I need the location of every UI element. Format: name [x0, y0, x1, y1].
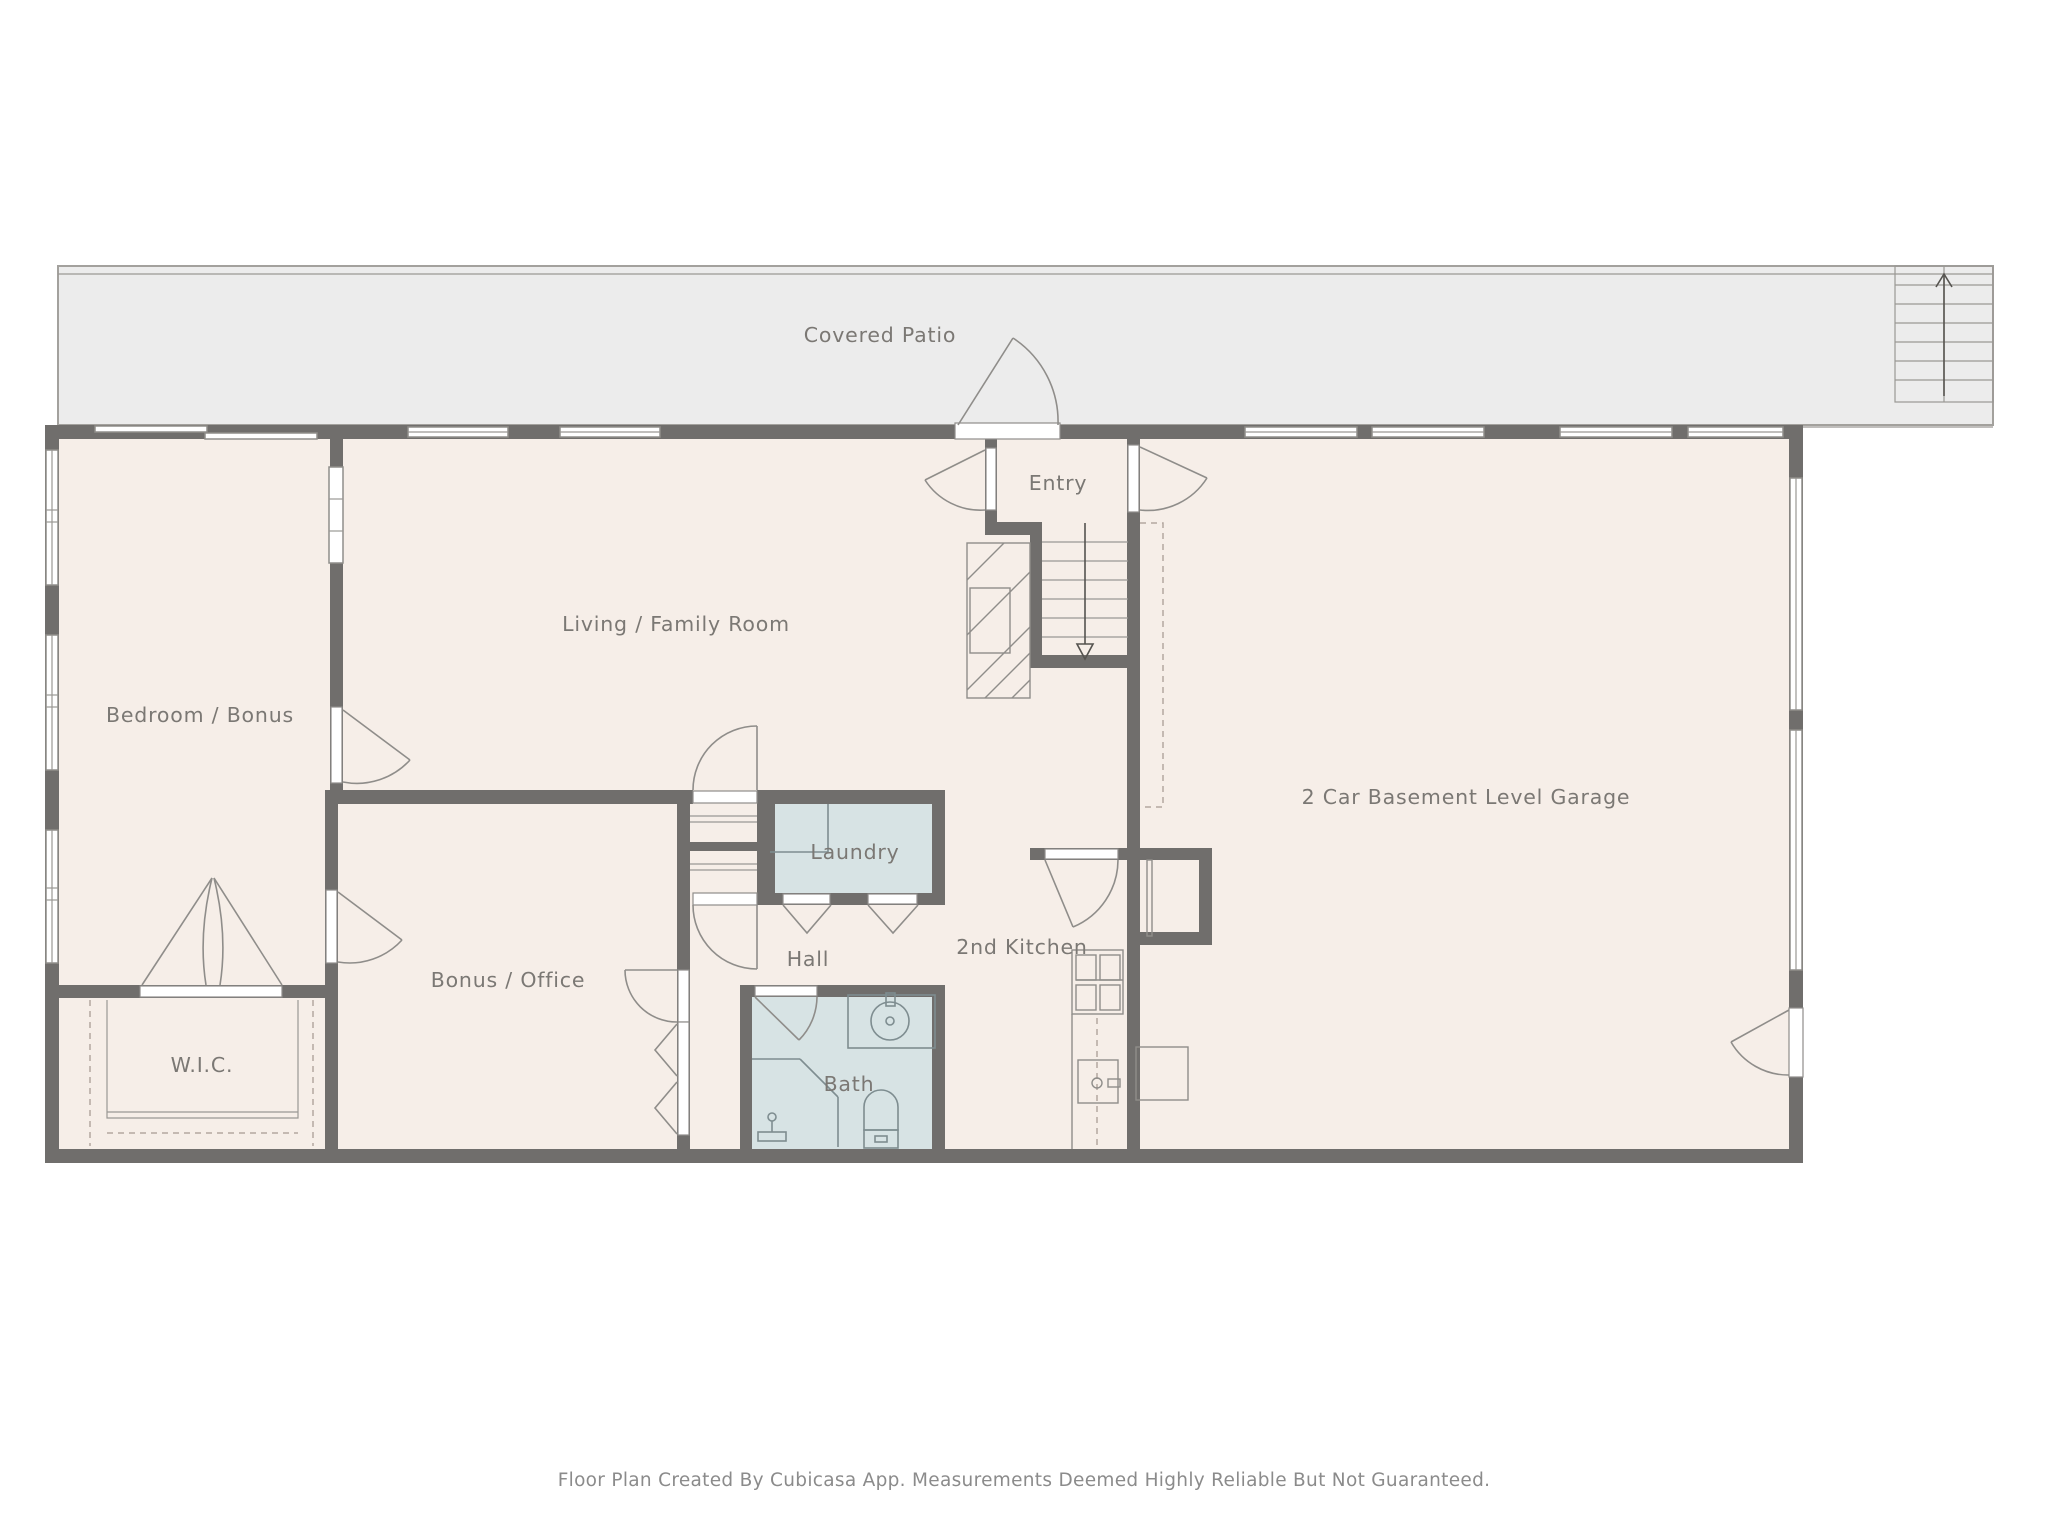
- floor-plan-drawing: Covered Patio Bedroom / Bonus Living / F…: [0, 0, 2048, 1535]
- room-label-covered-patio: Covered Patio: [804, 323, 956, 347]
- left-wall-windows: [46, 450, 58, 963]
- room-label-bath: Bath: [824, 1072, 875, 1096]
- room-label-garage: 2 Car Basement Level Garage: [1302, 785, 1631, 809]
- disclaimer-text: Floor Plan Created By Cubicasa App. Meas…: [0, 1470, 2048, 1491]
- room-label-bonus-office: Bonus / Office: [431, 968, 586, 992]
- room-label-bedroom-bonus: Bedroom / Bonus: [106, 703, 294, 727]
- room-label-entry: Entry: [1029, 471, 1088, 495]
- room-label-laundry: Laundry: [810, 840, 899, 864]
- room-label-2nd-kitchen: 2nd Kitchen: [956, 935, 1087, 959]
- interior-window: [329, 467, 343, 563]
- covered-patio: [58, 266, 1993, 427]
- floor-plan-page: Covered Patio Bedroom / Bonus Living / F…: [0, 0, 2048, 1535]
- room-label-living-family: Living / Family Room: [562, 612, 790, 636]
- room-label-wic: W.I.C.: [171, 1053, 234, 1077]
- room-label-hall: Hall: [787, 947, 830, 971]
